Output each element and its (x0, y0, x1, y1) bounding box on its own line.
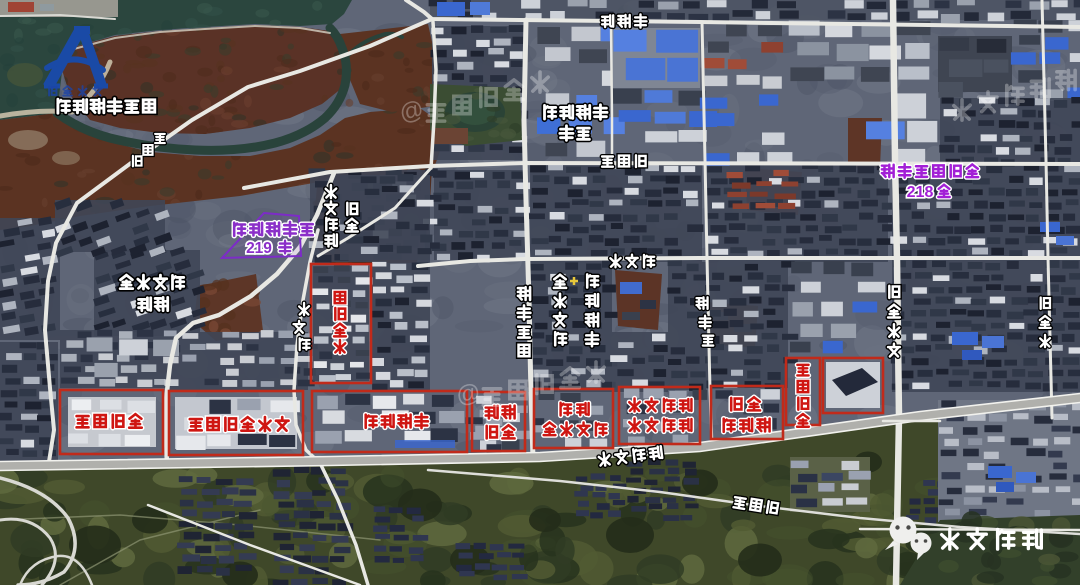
svg-text:219: 219 (246, 240, 272, 257)
svg-text:218: 218 (907, 184, 934, 201)
